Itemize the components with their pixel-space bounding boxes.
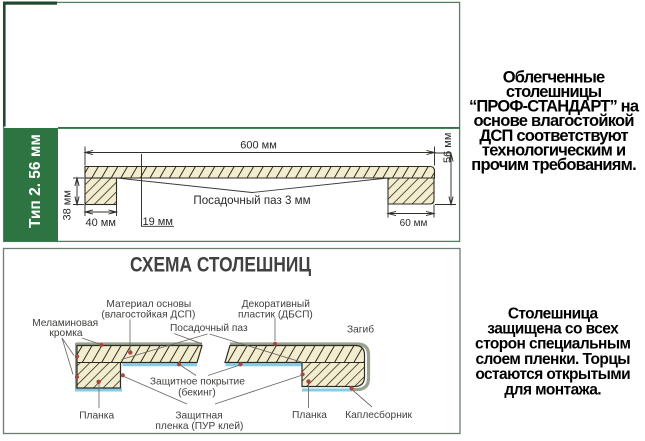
svg-text:(бекинг): (бекинг) <box>178 386 216 398</box>
svg-text:Планка: Планка <box>79 411 114 422</box>
svg-text:Меламиновая: Меламиновая <box>32 318 98 329</box>
svg-text:56 мм: 56 мм <box>442 133 454 163</box>
svg-text:Защитная: Защитная <box>175 411 222 422</box>
svg-text:прочим требованиям.: прочим требованиям. <box>471 156 636 174</box>
svg-text:600 мм: 600 мм <box>240 140 277 152</box>
svg-text:пластик (ДБСП): пластик (ДБСП) <box>238 309 313 320</box>
svg-text:40 мм: 40 мм <box>85 217 115 229</box>
svg-text:Защитное покрытие: Защитное покрытие <box>150 377 245 388</box>
svg-text:кромка: кромка <box>49 328 82 339</box>
svg-text:38 мм: 38 мм <box>62 190 74 220</box>
svg-text:Посадочный паз: Посадочный паз <box>170 323 248 334</box>
svg-text:СХЕМА СТОЛЕШНИЦ: СХЕМА СТОЛЕШНИЦ <box>130 253 311 277</box>
svg-text:60 мм: 60 мм <box>400 218 428 229</box>
svg-text:для монтажа.: для монтажа. <box>504 382 601 399</box>
svg-text:Планка: Планка <box>292 410 327 421</box>
svg-text:Загиб: Загиб <box>347 323 374 335</box>
svg-text:пленка (ПУР клей): пленка (ПУР клей) <box>155 421 243 432</box>
svg-text:(влагостойкая ДСП): (влагостойкая ДСП) <box>101 309 195 320</box>
svg-text:Каплесборник: Каплесборник <box>345 409 412 421</box>
svg-text:19 мм: 19 мм <box>143 216 173 228</box>
svg-text:Тип 2. 56 мм: Тип 2. 56 мм <box>27 134 44 228</box>
svg-text:Посадочный паз 3 мм: Посадочный паз 3 мм <box>193 194 310 207</box>
